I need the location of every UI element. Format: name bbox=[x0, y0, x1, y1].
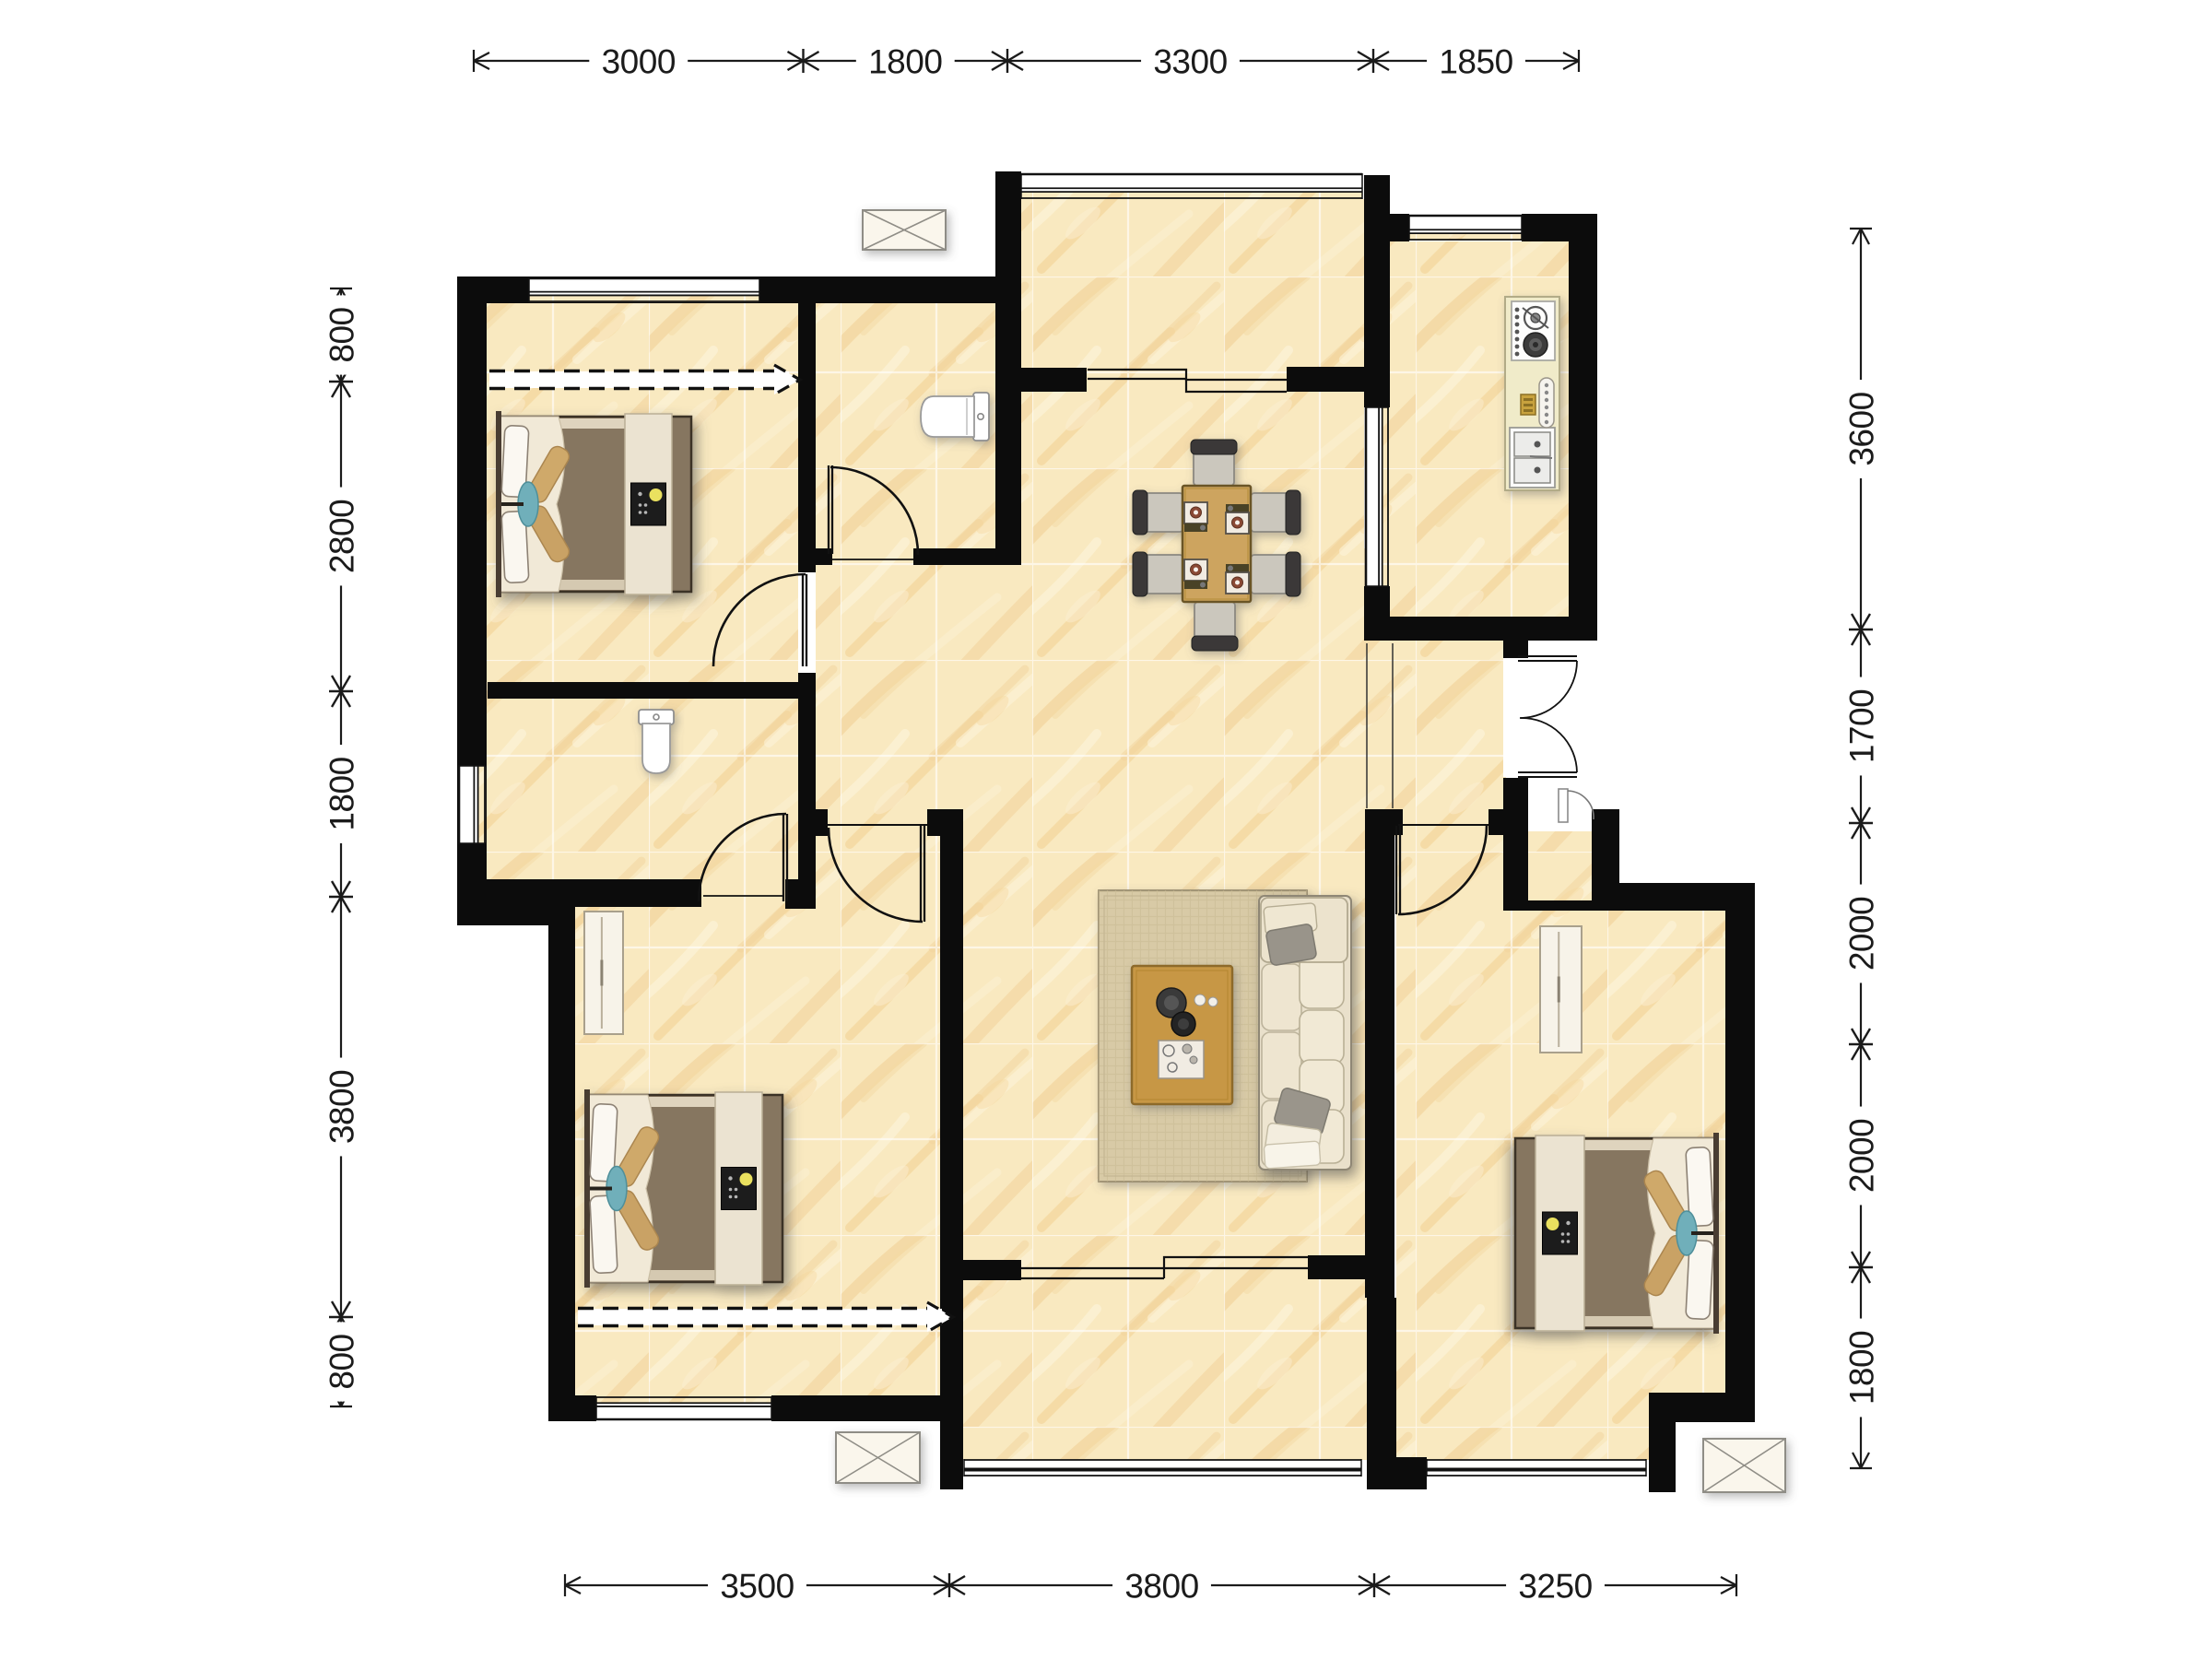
svg-text:1800: 1800 bbox=[1842, 1331, 1880, 1405]
svg-text:3800: 3800 bbox=[323, 1070, 360, 1144]
svg-text:1850: 1850 bbox=[1439, 42, 1512, 80]
svg-text:1700: 1700 bbox=[1842, 689, 1880, 763]
svg-text:2000: 2000 bbox=[1842, 897, 1880, 971]
svg-text:2000: 2000 bbox=[1842, 1119, 1880, 1193]
svg-text:3000: 3000 bbox=[602, 42, 676, 80]
svg-text:3500: 3500 bbox=[720, 1567, 794, 1605]
svg-text:1800: 1800 bbox=[868, 42, 942, 80]
svg-text:3250: 3250 bbox=[1518, 1567, 1592, 1605]
svg-text:3300: 3300 bbox=[1153, 42, 1227, 80]
svg-text:800: 800 bbox=[323, 1334, 360, 1389]
svg-text:1800: 1800 bbox=[323, 757, 360, 830]
svg-text:2800: 2800 bbox=[323, 500, 360, 573]
svg-text:800: 800 bbox=[323, 307, 360, 362]
svg-text:3800: 3800 bbox=[1124, 1567, 1198, 1605]
svg-text:3600: 3600 bbox=[1842, 392, 1880, 465]
